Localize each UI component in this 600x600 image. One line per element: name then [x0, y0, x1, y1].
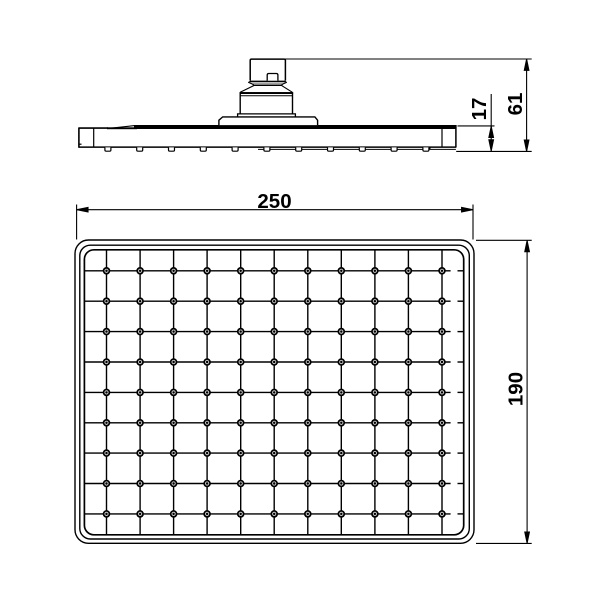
svg-text:250: 250 — [257, 190, 291, 213]
svg-text:61: 61 — [504, 93, 527, 116]
svg-text:17: 17 — [468, 98, 491, 121]
svg-text:190: 190 — [504, 372, 527, 406]
